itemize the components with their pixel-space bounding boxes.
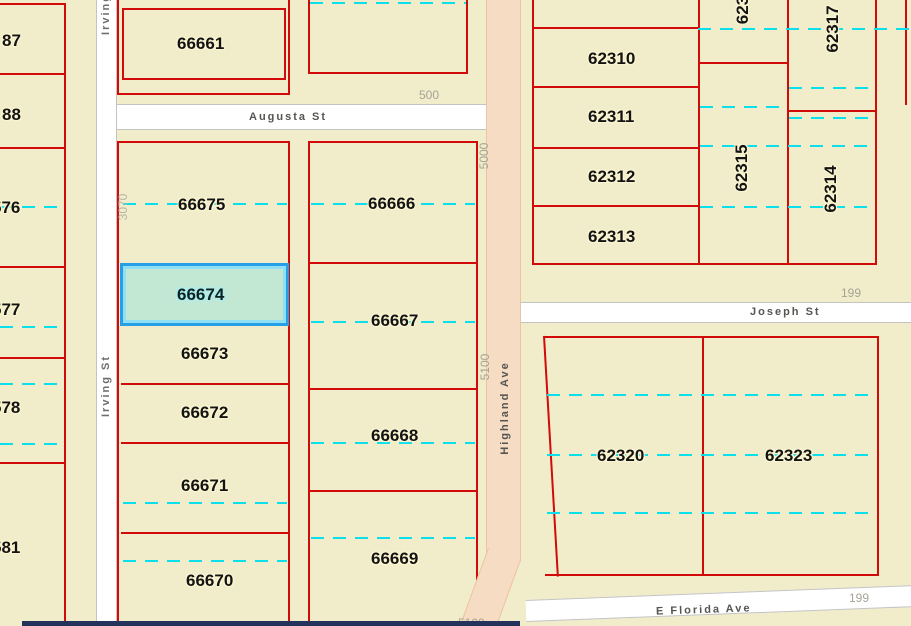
parcel-label-66673[interactable]: 66673 [181,344,228,364]
lot-dash-line [311,537,475,539]
lot-dash-line [700,106,785,108]
parcel-label-66675[interactable]: 66675 [178,195,225,215]
lot-dash-line [789,87,875,89]
parcel-boundary-line [121,532,289,534]
block-number-199-florida: 199 [849,591,869,605]
parcel-label-66667[interactable]: 66667 [371,311,418,331]
parcel-label-87[interactable]: 87 [2,31,21,51]
street-label-irving-st: Irving St [100,355,112,417]
street-label-joseph-st: Joseph St [750,306,821,318]
parcel-boundary-line [905,0,907,105]
parcel-label-66670[interactable]: 66670 [186,571,233,591]
lot-dash-line [0,443,66,445]
parcel-label-66671[interactable]: 66671 [181,476,228,496]
lot-dash-line [700,206,875,208]
lot-dash-line [0,326,66,328]
parcel-label-62323[interactable]: 62323 [765,446,812,466]
street-label-e-florida-ave: E Florida Ave [656,602,752,617]
block-number-500: 500 [419,88,439,102]
parcel-label-88[interactable]: 88 [2,105,21,125]
parcel-boundary-line [310,388,476,390]
parcel-block-62320s[interactable] [545,336,879,576]
parcel-label-66661[interactable]: 66661 [177,34,224,54]
parcel-label-62311[interactable]: 62311 [588,107,634,127]
parcel-boundary-line [532,27,698,29]
parcel-label-66674[interactable]: 66674 [177,285,224,305]
parcel-label-66672[interactable]: 66672 [181,403,228,423]
lot-dash-line [789,117,875,119]
parcel-boundary-line [310,262,476,264]
lot-dash-line [0,383,66,385]
block-number-199-joseph: 199 [841,286,861,300]
parcel-boundary-line [0,266,66,268]
lot-dash-line [310,2,466,4]
parcel-label-62315[interactable]: 62315 [732,142,752,194]
parcel-boundary-line [532,86,698,88]
parcel-boundary-line [0,147,66,149]
road-highland-ave [486,0,521,562]
street-label-augusta-st: Augusta St [249,111,327,123]
parcel-label-578[interactable]: 578 [0,398,20,418]
road-joseph-st [519,302,911,323]
parcel-label-66669[interactable]: 66669 [371,549,418,569]
parcel-boundary-line [702,338,704,574]
street-label-irving-partial: Irving [100,0,112,37]
parcel-boundary-line [0,357,66,359]
road-irving-st [96,0,117,626]
parcel-label-62310[interactable]: 62310 [588,49,635,69]
parcel-boundary-line [787,110,877,112]
parcel-label-62317[interactable]: 62317 [823,3,843,55]
parcel-boundary-line [532,147,698,149]
parcel-label-62312[interactable]: 62312 [588,167,635,187]
parcel-label-62313[interactable]: 62313 [588,227,635,247]
parcel-boundary-line [310,490,476,492]
parcel-label-62320[interactable]: 62320 [597,446,644,466]
lot-dash-line [547,512,877,514]
block-number-5000: 5000 [477,136,491,176]
parcel-label-66668[interactable]: 66668 [371,426,418,446]
lot-dash-line [700,145,875,147]
parcel-label-62314[interactable]: 62314 [821,163,841,215]
parcel-label-581[interactable]: 581 [0,538,20,558]
street-label-highland-ave: Highland Ave [499,360,511,456]
block-number-3070: 3070 [116,190,130,224]
parcel-boundary-line [0,462,66,464]
lot-dash-line [123,560,287,562]
parcel-label-66666[interactable]: 66666 [368,194,415,214]
parcel-boundary-line [787,0,789,265]
parcel-label-577[interactable]: 577 [0,300,20,320]
parcel-boundary-line [532,205,698,207]
parcel-label-576[interactable]: 576 [0,198,20,218]
lot-dash-line [547,394,877,396]
bottom-extent-bar [22,621,520,626]
parcel-boundary-line [121,442,289,444]
parcel-map-canvas[interactable]: 87 88 576 577 578 581 66661 66675 66673 … [0,0,911,626]
lot-dash-line [123,502,287,504]
parcel-boundary-line [698,62,787,64]
parcel-label-623-partial[interactable]: 623 [733,0,753,25]
parcel-block-top-mid[interactable] [308,0,468,74]
parcel-boundary-line [0,73,66,75]
parcel-boundary-line [121,383,289,385]
lot-dash-line [698,28,911,30]
block-number-5100: 5100 [478,347,492,387]
parcel-boundary-line [698,0,700,265]
